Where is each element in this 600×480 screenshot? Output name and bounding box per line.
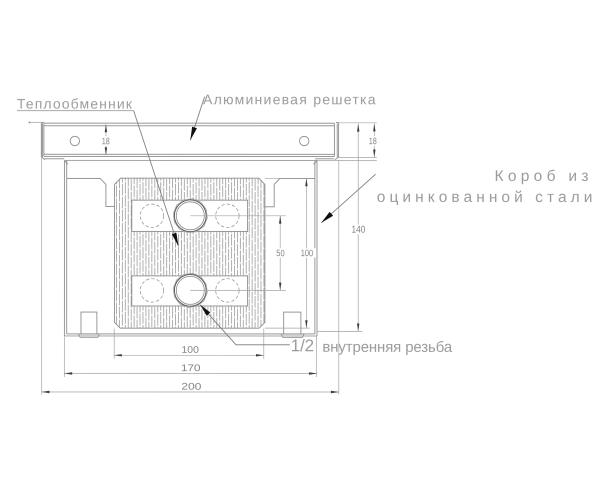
svg-text:100: 100	[301, 248, 313, 258]
svg-text:1/2: 1/2	[291, 336, 314, 355]
svg-text:Короб из: Короб из	[495, 168, 589, 185]
svg-text:170: 170	[181, 363, 201, 374]
svg-text:Алюминиевая решетка: Алюминиевая решетка	[203, 91, 376, 107]
svg-text:140: 140	[351, 225, 365, 236]
svg-text:100: 100	[181, 345, 198, 356]
svg-text:Теплообменник: Теплообменник	[17, 96, 133, 112]
svg-text:50: 50	[276, 248, 284, 258]
svg-text:оцинкованной стали: оцинкованной стали	[377, 189, 593, 206]
svg-text:внутренняя резьба: внутренняя резьба	[322, 339, 452, 356]
svg-text:200: 200	[181, 382, 201, 393]
svg-text:18: 18	[102, 136, 110, 146]
svg-text:18: 18	[369, 136, 377, 146]
